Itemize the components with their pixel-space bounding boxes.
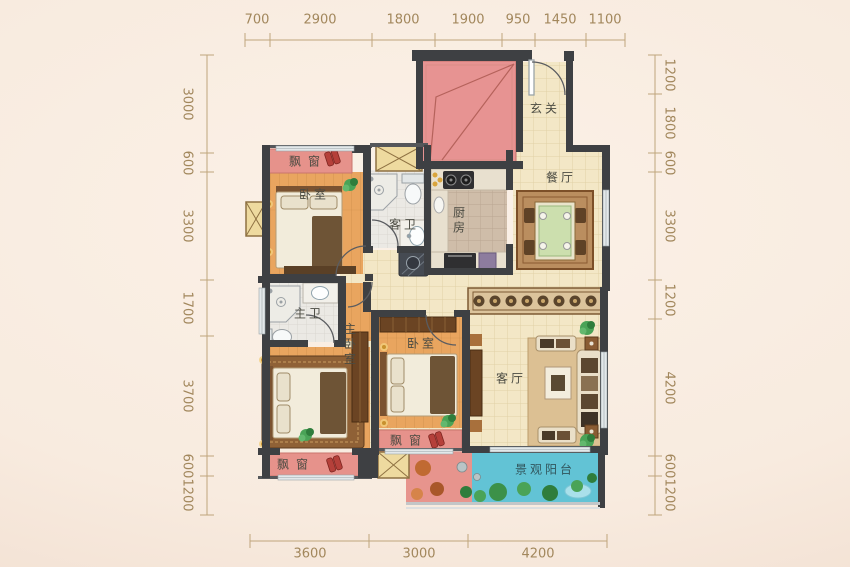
- room-label-entry: 玄关: [530, 100, 560, 117]
- dim-top-5: 950: [506, 13, 531, 28]
- dim-top-3: 1800: [386, 13, 419, 28]
- dim-left-3: 3300: [180, 209, 195, 242]
- dim-left-4: 1700: [180, 291, 195, 324]
- room-label-kitchen: 厨房: [451, 206, 468, 236]
- dim-left-1: 3000: [180, 87, 195, 120]
- room-label-balcony: 景观阳台: [515, 461, 575, 478]
- flue-box-icon: [378, 452, 409, 478]
- room-label-bedroom-top: 卧室: [299, 186, 329, 203]
- dim-right-5: 1200: [662, 283, 677, 316]
- dim-right-6: 4200: [662, 371, 677, 404]
- floor-plan: 700 2900 1800 1900 950 1450 1100 3000 60…: [0, 0, 850, 567]
- balcony-railing: [406, 502, 600, 509]
- dim-top-6: 1450: [543, 13, 576, 28]
- dim-bottom-1: 3600: [293, 547, 326, 562]
- dim-top-1: 700: [245, 13, 270, 28]
- dim-right-4: 3300: [662, 209, 677, 242]
- flue-box-icon: [376, 146, 422, 171]
- bed-bedroom-middle: [380, 317, 457, 416]
- dim-left-7: 1200: [180, 478, 195, 511]
- dim-top-7: 1100: [588, 13, 621, 28]
- room-label-living-room: 客厅: [496, 370, 526, 387]
- hallway-runner: [468, 288, 606, 314]
- dim-right-7: 600: [662, 454, 677, 479]
- room-label-bay-window-3: 飘窗: [390, 432, 428, 449]
- red-block: [422, 61, 516, 164]
- dim-top-4: 1900: [451, 13, 484, 28]
- room-label-dining-room: 餐厅: [546, 169, 576, 186]
- room-label-master-bathroom: 主卫: [294, 305, 324, 322]
- room-label-master-bedroom: 主卧室: [342, 323, 359, 368]
- dim-bottom-3: 4200: [521, 547, 554, 562]
- washing-machine: [399, 250, 428, 276]
- room-label-guest-bathroom: 客卫: [389, 216, 419, 233]
- dim-left-6: 600: [180, 454, 195, 479]
- dim-right-1: 1200: [662, 58, 677, 91]
- floor-plan-graphic: [0, 0, 850, 567]
- dim-left-5: 3700: [180, 379, 195, 412]
- dining-set: [517, 191, 593, 269]
- dim-right-2: 1800: [662, 106, 677, 139]
- dim-left-2: 600: [180, 151, 195, 176]
- dim-right-3: 600: [662, 151, 677, 176]
- room-label-bedroom-middle: 卧室: [407, 335, 437, 352]
- dim-right-8: 1200: [662, 478, 677, 511]
- dim-top-2: 2900: [303, 13, 336, 28]
- dim-bottom-2: 3000: [402, 547, 435, 562]
- room-label-bay-window-1: 飘窗: [289, 153, 327, 170]
- room-label-bay-window-2: 飘窗: [277, 456, 315, 473]
